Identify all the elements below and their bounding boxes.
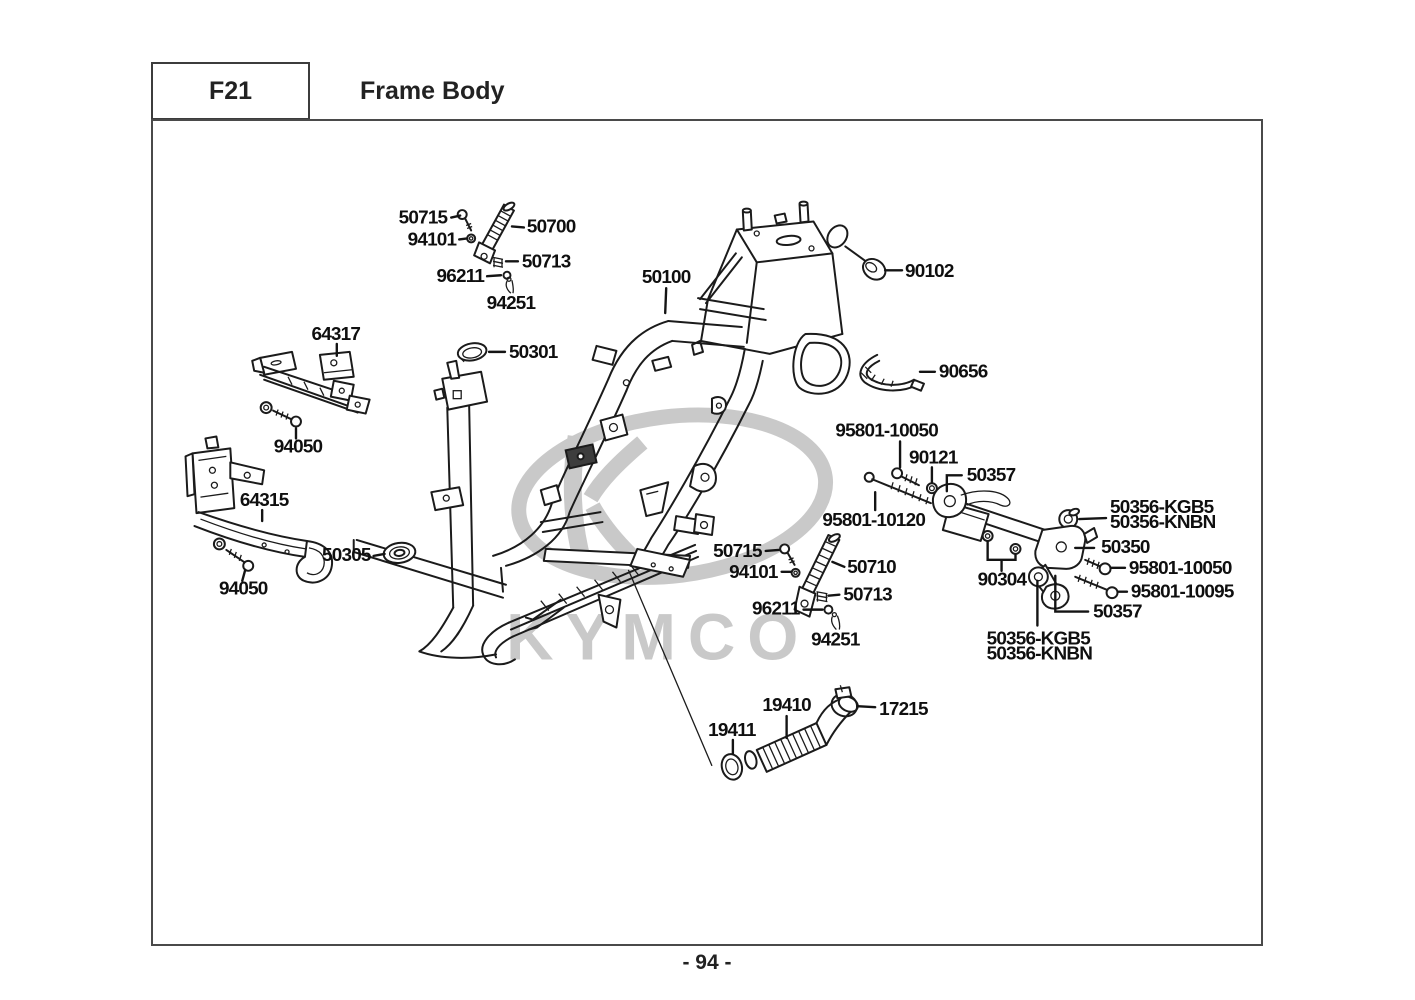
part-label-50350: 50350	[1101, 537, 1150, 558]
part-label-96211-top: 96211	[437, 266, 485, 287]
part-label-50710: 50710	[847, 557, 896, 578]
part-label-94050-upper: 94050	[274, 436, 323, 457]
part-label-50100: 50100	[642, 267, 691, 288]
part-label-50356-knbn-bottom: 50356-KNBN	[987, 643, 1093, 664]
part-label-64317: 64317	[312, 324, 361, 345]
part-label-95801-10050-right: 95801-10050	[1129, 558, 1232, 579]
doc-code-box: F21	[151, 62, 310, 120]
part-label-94251-top: 94251	[487, 293, 536, 314]
part-label-50713-mid: 50713	[843, 585, 892, 606]
part-label-64315: 64315	[240, 490, 289, 511]
part-label-50356-knbn-right: 50356-KNBN	[1110, 512, 1216, 533]
part-label-17215: 17215	[879, 699, 928, 720]
part-label-94101-top: 94101	[408, 229, 457, 250]
part-label-50357-lower: 50357	[1093, 602, 1142, 623]
page-number: - 94 -	[151, 951, 1263, 975]
diagram-canvas: KYMCO	[151, 119, 1263, 946]
part-label-90304: 90304	[978, 570, 1028, 591]
catalog-page: F21 Frame Body KYMCO	[0, 0, 1415, 1000]
part-label-95801-10050-top: 95801-10050	[835, 420, 938, 441]
part-50710-footrest-bar	[795, 533, 841, 617]
part-label-95801-10120: 95801-10120	[822, 510, 925, 531]
part-50700-footrest-bar	[474, 201, 515, 263]
part-label-95801-10095: 95801-10095	[1131, 582, 1234, 603]
part-label-90121: 90121	[909, 447, 958, 468]
part-label-19411: 19411	[708, 720, 756, 741]
part-label-94101-mid: 94101	[729, 562, 778, 583]
part-label-50305: 50305	[322, 545, 371, 566]
part-label-96211-mid: 96211	[752, 599, 800, 620]
part-50305-grommet	[382, 541, 416, 565]
kymco-watermark: KYMCO	[506, 398, 835, 673]
part-label-50715-top: 50715	[399, 208, 448, 229]
part-label-50713-top: 50713	[522, 251, 571, 272]
part-label-50715-mid: 50715	[713, 541, 762, 562]
part-label-94050-lower: 94050	[219, 579, 268, 600]
part-label-90656: 90656	[939, 362, 988, 383]
frame-body-diagram: KYMCO	[153, 121, 1261, 944]
page-title: Frame Body	[360, 77, 504, 106]
fastener-94050-upper	[261, 402, 301, 426]
part-90656-strap	[860, 355, 924, 391]
part-label-50700: 50700	[527, 216, 576, 237]
part-label-50357-upper: 50357	[967, 465, 1016, 486]
part-label-90102: 90102	[905, 261, 954, 282]
part-label-50301: 50301	[509, 342, 558, 363]
part-label-19410: 19410	[762, 695, 811, 716]
part-50301-ring	[456, 341, 487, 363]
part-label-94251-mid: 94251	[811, 629, 860, 650]
doc-code: F21	[209, 77, 252, 106]
